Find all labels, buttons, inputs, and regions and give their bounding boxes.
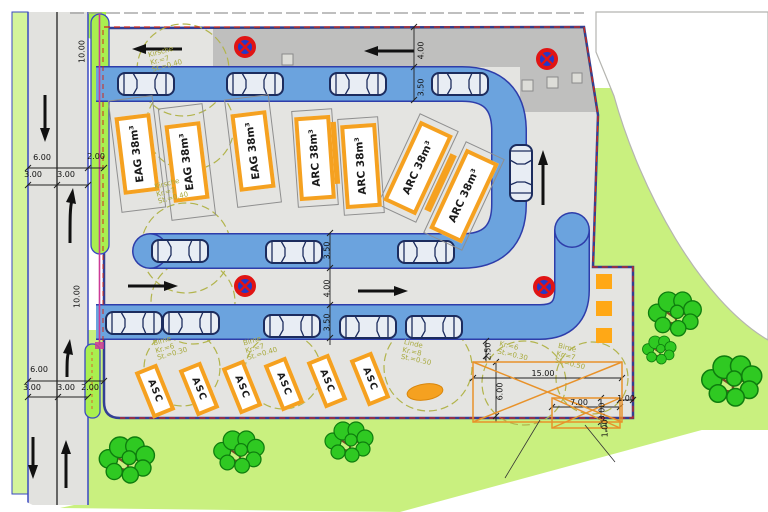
- dim-inner-pad-width: 7.00: [562, 398, 596, 407]
- dim-pad-depth: 6.00: [496, 375, 505, 409]
- dim-segment-bottom: 10.00: [73, 280, 82, 314]
- dim-verge-top: 2.00: [79, 152, 113, 161]
- dim-top-parking-strip: 3.50: [417, 71, 426, 105]
- dim-road-lane1-top: 3.00: [16, 170, 50, 179]
- dim-inner-offset-bottom: 1.00: [601, 412, 610, 446]
- site-plan: EAG 38m³ EAG 38m³ EAG 38m³ ARC 38m³ ARC …: [0, 0, 768, 512]
- dim-inner-offset-right: 1.00: [609, 394, 643, 403]
- dim-road-lane1-bottom: 3.00: [15, 383, 49, 392]
- dim-verge-bottom: 2.00: [73, 383, 107, 392]
- plan-drawing: [0, 0, 768, 512]
- container-arc-1: ARC 38m³: [294, 115, 336, 201]
- dim-road-width-bottom: 6.00: [22, 365, 56, 374]
- dim-top-drive-lane: 4.00: [417, 34, 426, 68]
- public-road: [28, 12, 88, 505]
- container-arc-2: ARC 38m³: [340, 123, 382, 209]
- dim-segment-top: 10.00: [78, 35, 87, 69]
- dim-pad-offset: 2.50: [484, 335, 493, 369]
- dim-road-width-top: 6.00: [25, 153, 59, 162]
- dim-mid-parking-lower: 3.50: [323, 306, 332, 340]
- dim-mid-drive-lane: 4.00: [323, 272, 332, 306]
- dim-mid-parking-upper: 3.50: [323, 234, 332, 268]
- dim-pad-width: 15.00: [523, 369, 563, 378]
- dim-road-lane2-top: 3.00: [49, 170, 83, 179]
